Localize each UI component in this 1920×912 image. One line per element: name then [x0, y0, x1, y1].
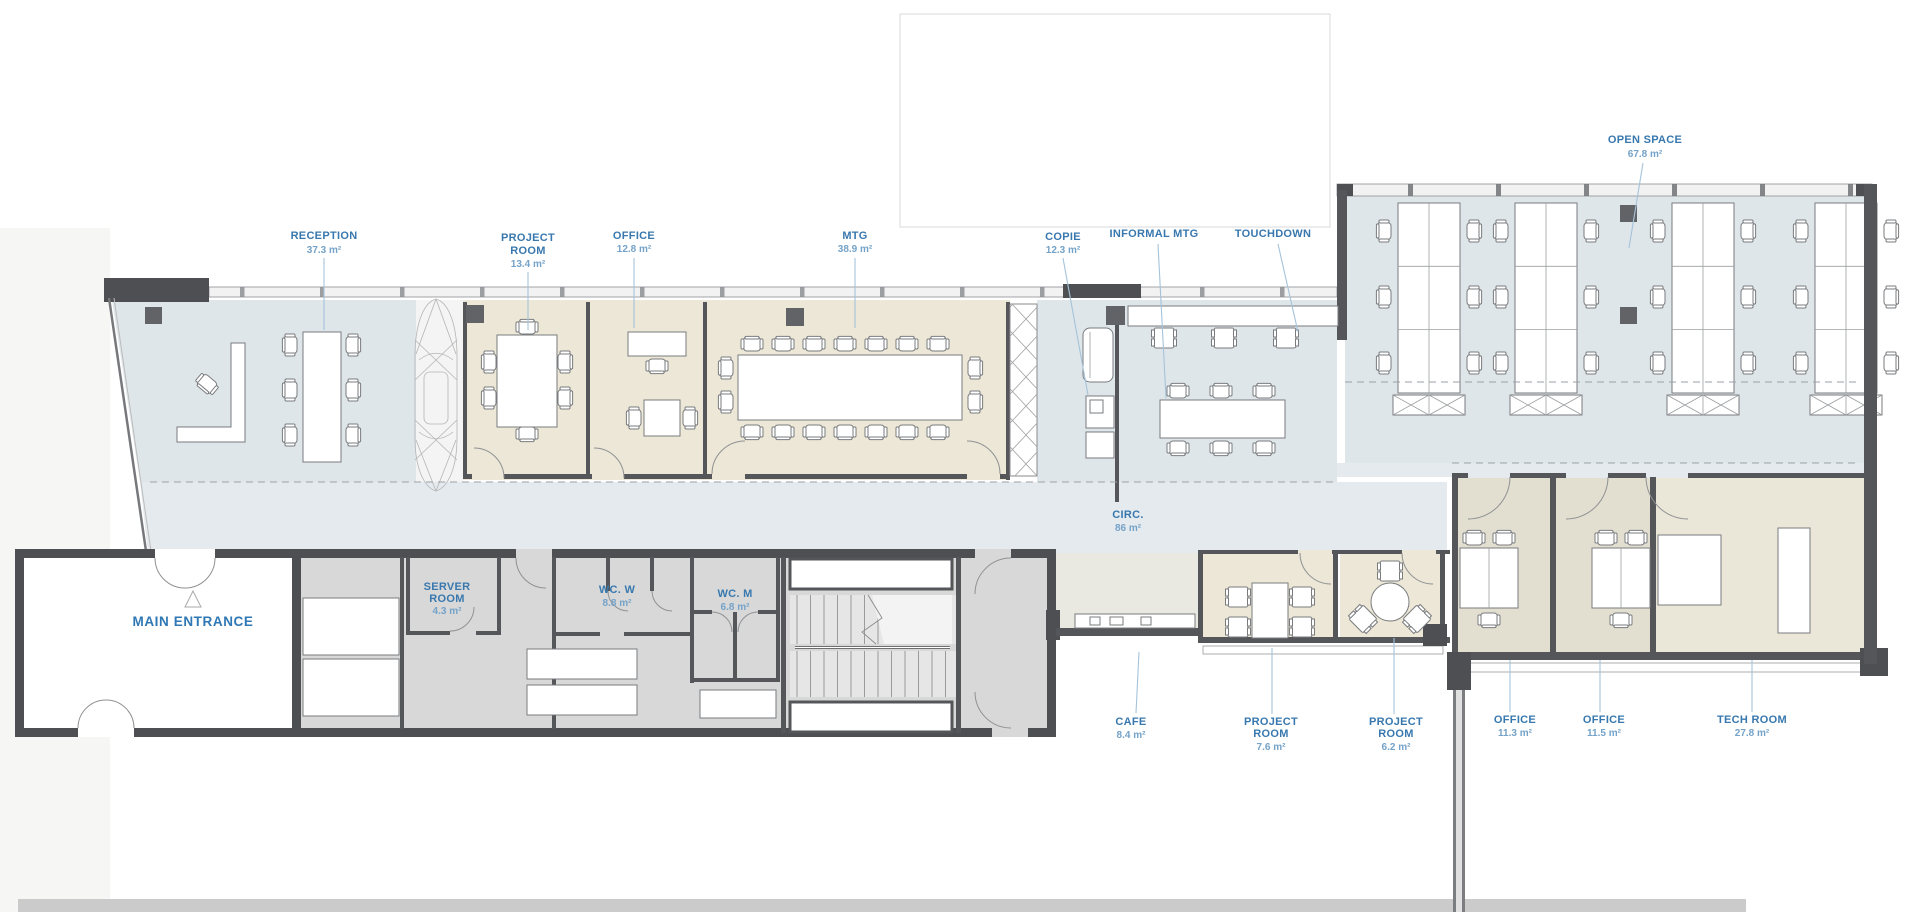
floor-plan-drawing: RECEPTION 37.3 m² PROJECT ROOM 13.4 m² O… [0, 0, 1920, 912]
circulation-floor [140, 482, 1447, 553]
label-project-room-c-1: PROJECT [1369, 716, 1423, 728]
label-office-c: OFFICE [1583, 714, 1625, 726]
label-informal-mtg: INFORMAL MTG [1110, 228, 1199, 240]
reception-floor [112, 300, 416, 482]
floor-plan-page: RECEPTION 37.3 m² PROJECT ROOM 13.4 m² O… [0, 0, 1920, 912]
label-wc-w: WC. W [599, 584, 636, 596]
office-a-floor [590, 300, 707, 480]
label-project-room-c-area: 6.2 m² [1382, 742, 1412, 753]
label-open-space-area: 67.8 m² [1628, 149, 1663, 160]
label-copie: COPIE [1045, 231, 1081, 243]
label-project-room-b-area: 7.6 m² [1257, 742, 1287, 753]
label-main-entrance: MAIN ENTRANCE [132, 614, 253, 629]
north-wall-segment-left [104, 278, 209, 302]
label-project-room-a-area: 13.4 m² [511, 259, 546, 270]
label-open-space: OPEN SPACE [1608, 134, 1682, 146]
upper-void-outline [900, 14, 1330, 227]
label-circ: CIRC. [1112, 509, 1143, 521]
north-wall-segment-copie [1063, 284, 1141, 298]
label-touchdown: TOUCHDOWN [1235, 228, 1311, 240]
label-server-room-2: ROOM [429, 593, 464, 605]
label-copie-area: 12.3 m² [1046, 245, 1081, 256]
label-wc-w-area: 8.8 m² [603, 598, 633, 609]
page-bottom-band [18, 899, 1746, 912]
label-office-c-area: 11.5 m² [1587, 728, 1622, 739]
label-office-b: OFFICE [1494, 714, 1536, 726]
label-circ-area: 86 m² [1115, 523, 1142, 534]
label-project-room-b-1: PROJECT [1244, 716, 1298, 728]
label-project-room-a-2: ROOM [510, 245, 545, 257]
label-reception-area: 37.3 m² [307, 245, 342, 256]
label-reception: RECEPTION [291, 230, 358, 242]
cafe-furniture [1075, 614, 1195, 628]
south-wall-fill [1456, 690, 1462, 912]
label-office-a-area: 12.8 m² [617, 244, 652, 255]
label-office-b-area: 11.3 m² [1498, 728, 1533, 739]
label-project-room-b-2: ROOM [1253, 728, 1288, 740]
label-cafe-area: 8.4 m² [1117, 730, 1147, 741]
label-wc-m-area: 6.8 m² [721, 602, 751, 613]
label-server-room-area: 4.3 m² [433, 606, 463, 617]
label-project-room-a-1: PROJECT [501, 232, 555, 244]
label-office-a: OFFICE [613, 230, 655, 242]
label-project-room-c-2: ROOM [1378, 728, 1413, 740]
label-tech-room: TECH ROOM [1717, 714, 1787, 726]
label-server-room-1: SERVER [424, 581, 471, 593]
label-mtg-area: 38.9 m² [838, 244, 873, 255]
main-entrance-floor [15, 553, 297, 737]
label-wc-m: WC. M [717, 588, 752, 600]
label-mtg: MTG [842, 230, 867, 242]
label-tech-room-area: 27.8 m² [1735, 728, 1770, 739]
label-cafe: CAFE [1115, 716, 1146, 728]
